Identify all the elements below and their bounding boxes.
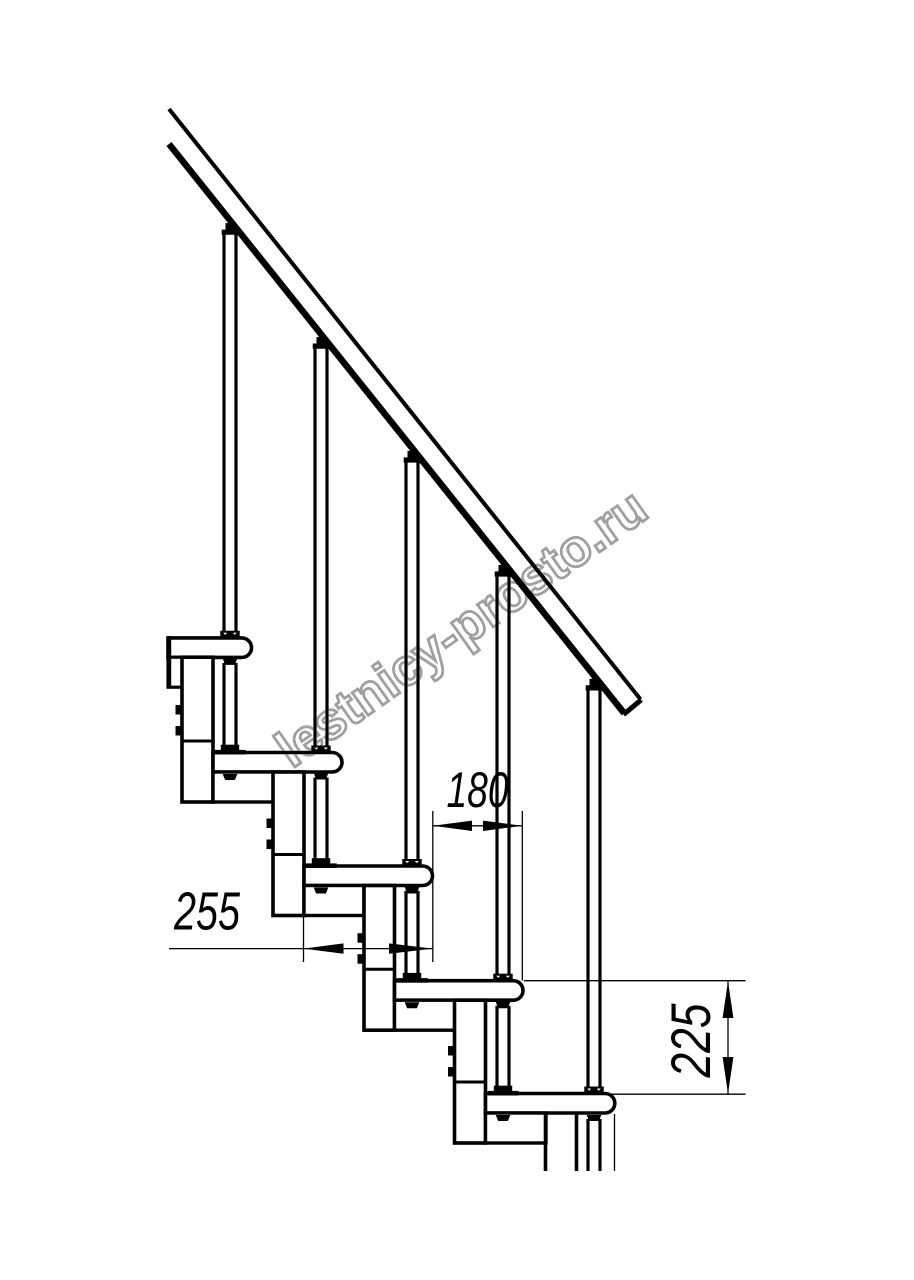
- svg-text:225: 225: [659, 1003, 722, 1078]
- svg-text:255: 255: [173, 882, 240, 942]
- svg-text:180: 180: [447, 762, 509, 818]
